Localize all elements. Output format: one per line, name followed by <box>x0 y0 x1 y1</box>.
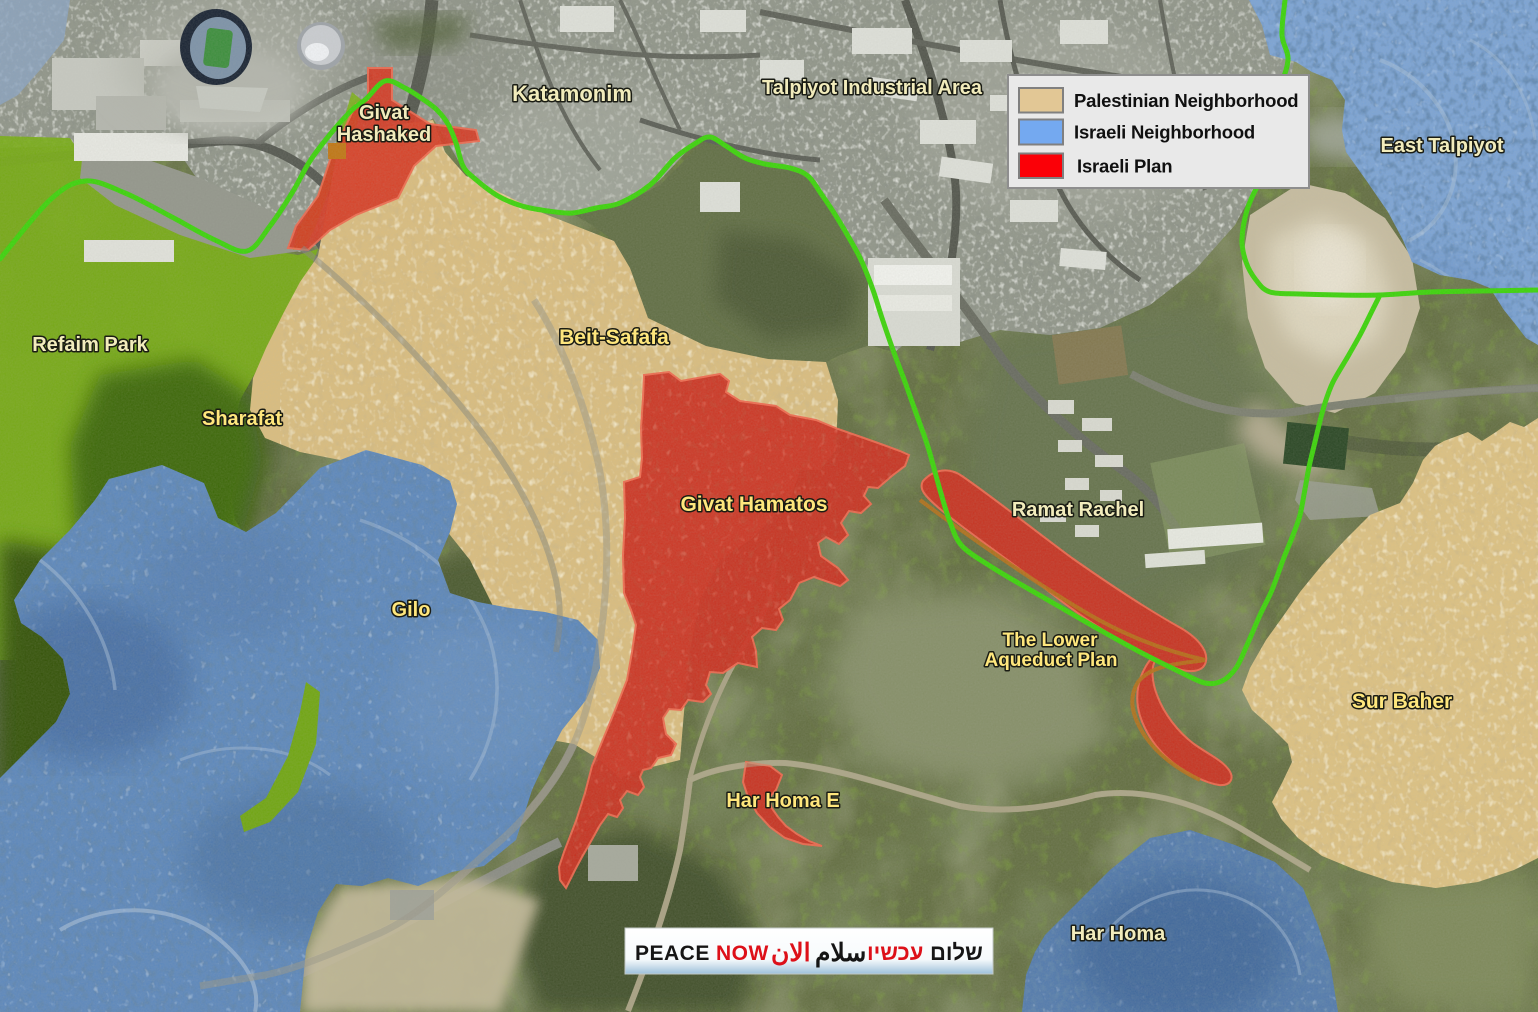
svg-text:Israeli Plan: Israeli Plan <box>1077 156 1172 177</box>
svg-text:PEACE: PEACE <box>635 942 710 965</box>
svg-text:Palestinian Neighborhood: Palestinian Neighborhood <box>1074 90 1298 111</box>
svg-text:שלום: שלום <box>930 940 983 965</box>
svg-text:Givat: Givat <box>359 102 409 124</box>
svg-text:The Lower: The Lower <box>1002 630 1098 651</box>
svg-text:الان: الان <box>771 939 811 967</box>
svg-text:Refaim Park: Refaim Park <box>32 334 148 356</box>
svg-text:Sharafat: Sharafat <box>202 408 282 430</box>
svg-text:Har Homa E: Har Homa E <box>726 790 839 812</box>
svg-text:Aqueduct Plan: Aqueduct Plan <box>984 650 1117 671</box>
svg-text:Talpiyot Industrial Area: Talpiyot Industrial Area <box>762 77 983 99</box>
svg-text:Ramat Rachel: Ramat Rachel <box>1012 499 1144 521</box>
svg-text:سلام: سلام <box>815 939 866 968</box>
svg-text:Har Homa: Har Homa <box>1071 923 1166 945</box>
svg-text:Sur Baher: Sur Baher <box>1352 690 1452 713</box>
svg-text:Katamonim: Katamonim <box>512 81 632 106</box>
svg-text:NOW: NOW <box>716 942 769 965</box>
svg-text:Beit-Safafa: Beit-Safafa <box>559 326 669 349</box>
svg-text:עכשיו: עכשיו <box>867 940 923 965</box>
svg-text:Gilo: Gilo <box>392 599 431 621</box>
svg-text:Givat Hamatos: Givat Hamatos <box>680 493 827 516</box>
svg-text:Hashaked: Hashaked <box>337 124 432 146</box>
svg-text:Israeli Neighborhood: Israeli Neighborhood <box>1074 122 1255 143</box>
svg-text:East Talpiyot: East Talpiyot <box>1381 135 1504 157</box>
